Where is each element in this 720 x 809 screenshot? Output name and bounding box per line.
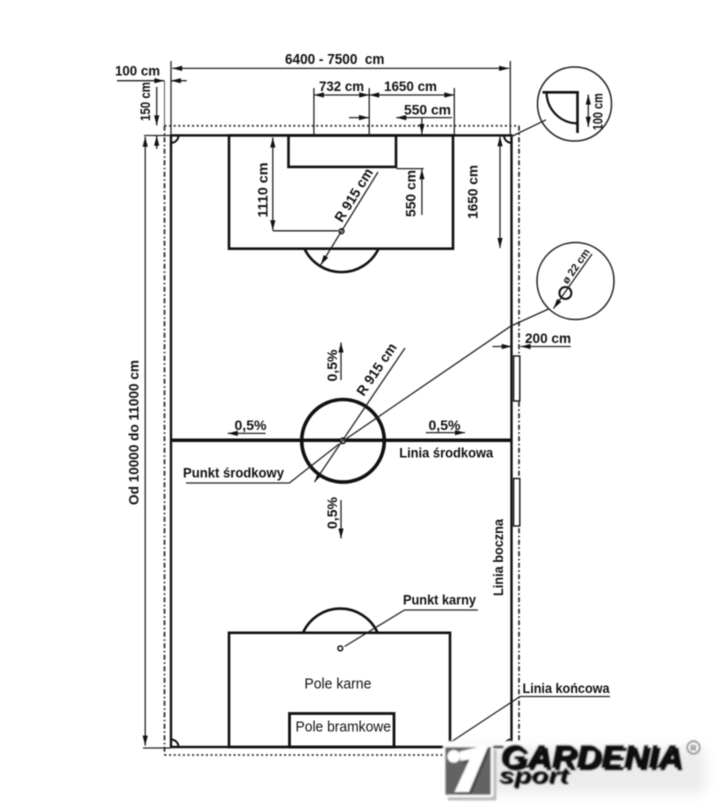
svg-text:Pole karne: Pole karne [304,675,371,692]
svg-text:100 cm: 100 cm [589,93,605,130]
svg-text:6400 - 7500 cm: 6400 - 7500 cm [285,51,385,68]
svg-text:0,5%: 0,5% [324,349,340,382]
svg-text:Punkt środkowy: Punkt środkowy [183,465,284,481]
svg-text:Linia końcowa: Linia końcowa [523,680,610,696]
svg-text:0,5%: 0,5% [235,417,268,433]
svg-text:R: R [690,743,696,753]
svg-text:Od 10000 do 11000 cm: Od 10000 do 11000 cm [126,360,142,505]
svg-text:550 cm: 550 cm [403,170,419,217]
svg-text:Linia boczna: Linia boczna [490,519,506,596]
svg-text:1650 cm: 1650 cm [465,165,481,219]
svg-text:1650 cm: 1650 cm [384,78,437,94]
svg-text:732 cm: 732 cm [319,78,364,94]
svg-text:150 cm: 150 cm [137,82,153,121]
svg-text:0,5%: 0,5% [324,496,340,529]
svg-text:Pole bramkowe: Pole bramkowe [296,718,392,735]
svg-text:200 cm: 200 cm [525,330,571,346]
svg-text:Linia środkowa: Linia środkowa [399,444,493,460]
svg-text:0,5%: 0,5% [429,417,462,433]
svg-text:sport: sport [499,763,571,788]
svg-text:1110 cm: 1110 cm [255,163,271,218]
svg-text:100 cm: 100 cm [115,63,160,79]
svg-text:550 cm: 550 cm [404,101,451,117]
svg-text:Punkt karny: Punkt karny [403,592,476,608]
